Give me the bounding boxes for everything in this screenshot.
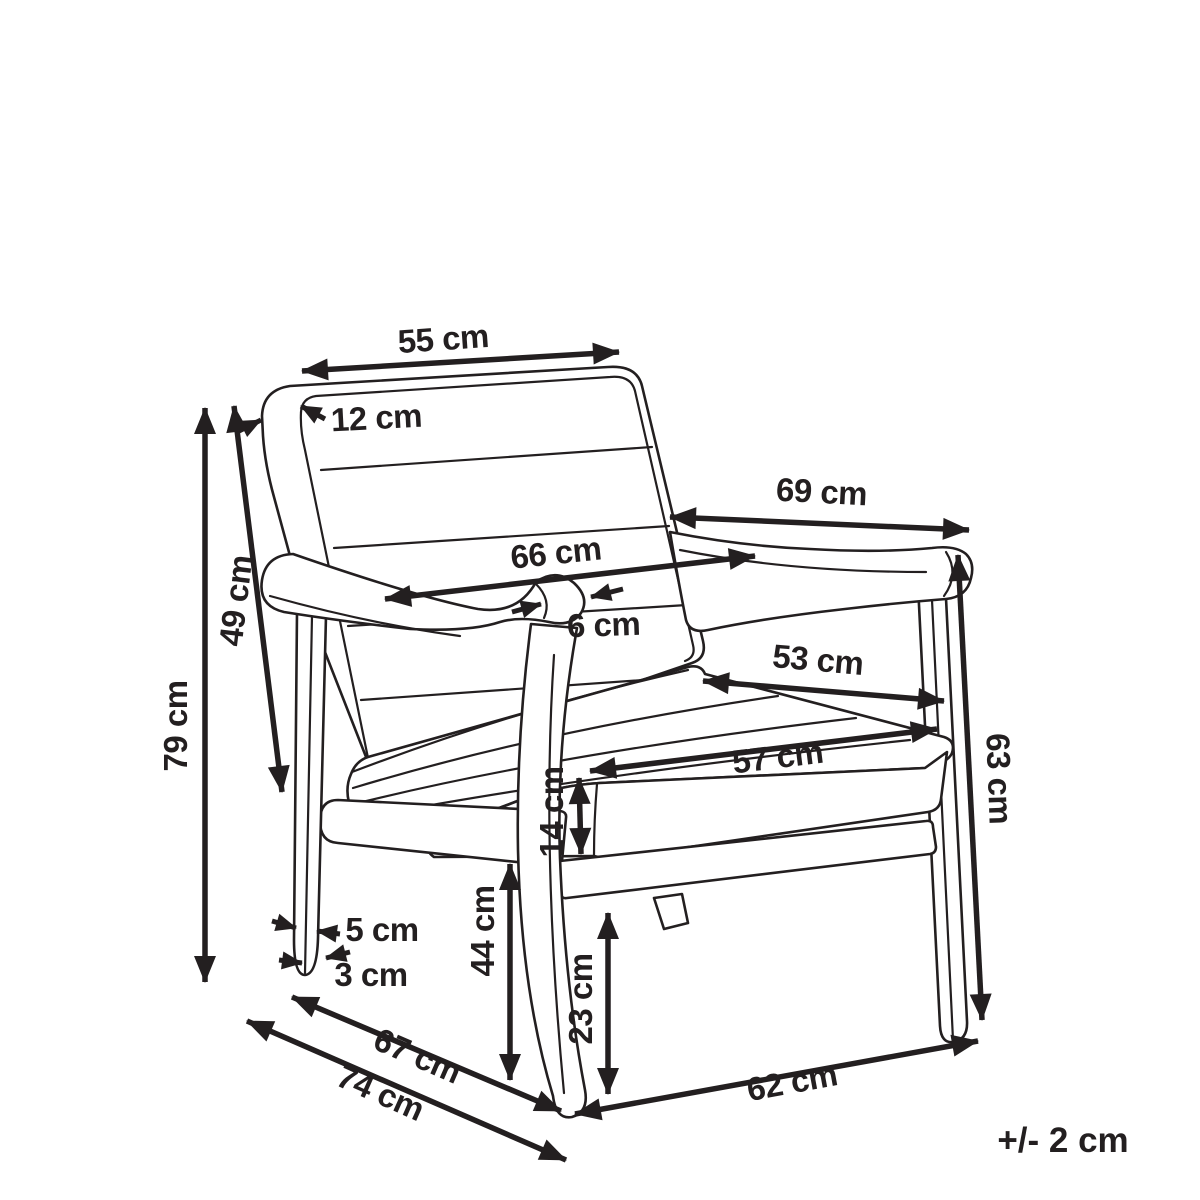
dim-arrow-12cm-outer bbox=[237, 420, 261, 432]
armchair-dimension-diagram: 55 cm 12 cm 69 cm 66 cm 6 cm 49 cm 79 cm bbox=[0, 0, 1200, 1200]
dim-label-62cm: 62 cm bbox=[744, 1055, 840, 1108]
dim-label-55cm: 55 cm bbox=[396, 317, 489, 360]
dimension-overall-height: 79 cm bbox=[157, 408, 205, 982]
dim-label-53cm: 53 cm bbox=[771, 637, 865, 682]
dim-label-44cm: 44 cm bbox=[464, 885, 501, 976]
tolerance-note: +/- 2 cm bbox=[997, 1121, 1128, 1160]
dim-label-6cm: 6 cm bbox=[566, 605, 640, 645]
dim-label-5cm: 5 cm bbox=[345, 911, 418, 948]
dim-label-12cm: 12 cm bbox=[330, 397, 423, 439]
dimension-backrest-width: 55 cm bbox=[302, 317, 619, 371]
dim-line-69cm bbox=[670, 517, 969, 530]
dim-label-3cm: 3 cm bbox=[334, 956, 407, 993]
dim-label-49cm: 49 cm bbox=[212, 553, 260, 648]
dim-label-63cm: 63 cm bbox=[979, 732, 1019, 824]
dimension-armrest-height: 63 cm bbox=[958, 555, 1020, 1020]
dim-line-14cm bbox=[579, 778, 581, 854]
dim-arrow-5cm-right bbox=[317, 931, 340, 934]
rear-right-leg bbox=[654, 894, 688, 929]
dimension-front-width: 62 cm bbox=[575, 1041, 978, 1114]
dimension-seat-height: 44 cm bbox=[464, 864, 510, 1080]
dimension-armrest-length: 69 cm bbox=[670, 471, 969, 530]
dimension-diagram-page: 55 cm 12 cm 69 cm 66 cm 6 cm 49 cm 79 cm bbox=[0, 0, 1200, 1200]
rear-left-leg bbox=[294, 612, 326, 975]
dim-arrow-5cm-left bbox=[272, 921, 296, 928]
dim-label-69cm: 69 cm bbox=[775, 471, 868, 513]
dim-arrow-3cm-left bbox=[279, 960, 302, 963]
dim-label-14cm: 14 cm bbox=[533, 766, 570, 857]
dim-label-23cm: 23 cm bbox=[562, 953, 599, 1044]
dim-label-79cm: 79 cm bbox=[157, 680, 194, 771]
